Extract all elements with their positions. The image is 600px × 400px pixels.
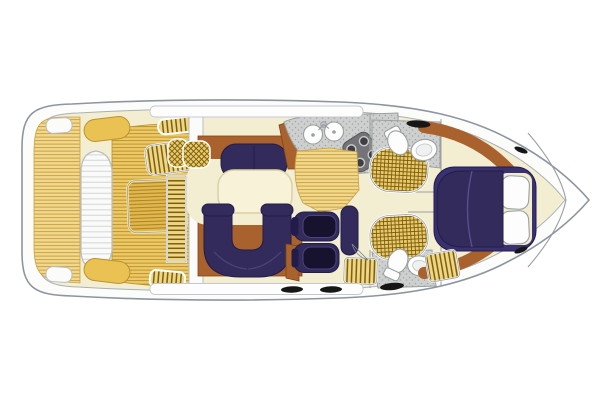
mid-cabin-stool: [344, 257, 378, 284]
wicker-cabinet: [168, 139, 210, 168]
stern-locker-starboard: [45, 266, 72, 283]
boat-floorplan: [0, 0, 600, 400]
mid-cabin-seat-1: [292, 212, 340, 241]
swim-platform: [34, 117, 80, 283]
forward-cabin-stool: [425, 249, 460, 282]
stern-locker-port: [46, 117, 73, 134]
companionway-steps: [167, 176, 186, 262]
side-window-port: [150, 106, 363, 117]
yacht-floorplan-screenshot: [0, 0, 600, 400]
island-bed: [434, 167, 536, 251]
bed-pillow-1: [500, 175, 530, 209]
mid-cabin-seat-2: [292, 244, 340, 273]
bed-pillow-2: [500, 210, 530, 244]
